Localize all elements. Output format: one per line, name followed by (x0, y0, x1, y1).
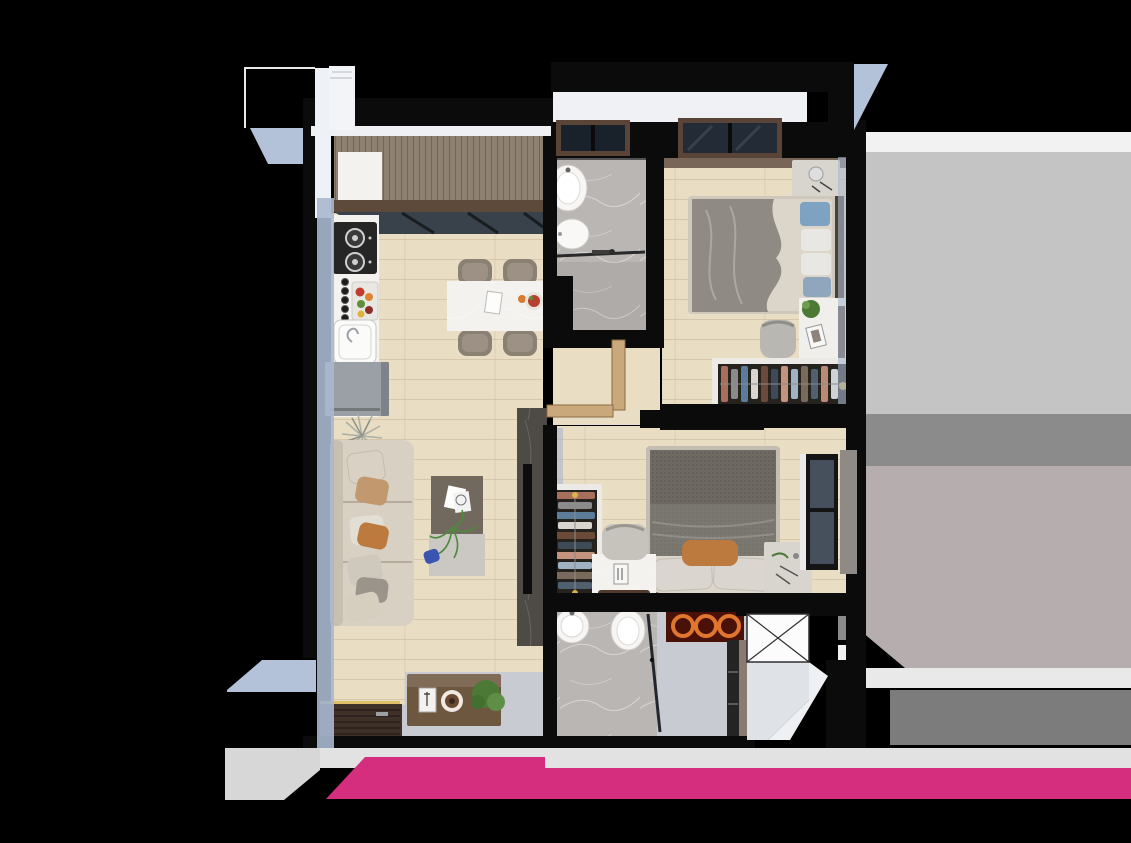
wall-bath1-bottom (543, 330, 664, 348)
wall-bottom-right (826, 660, 866, 752)
fruit-tray (352, 282, 378, 320)
bathroom2-tub (611, 610, 645, 650)
kitchen-sink (334, 320, 376, 364)
wall-niche (543, 276, 573, 334)
shoe-sideboard (407, 674, 505, 726)
bedroom1-window (678, 118, 782, 158)
desk-chair-1 (760, 320, 796, 358)
wardrobe-1 (712, 358, 852, 410)
door-leaf-bedroom2 (547, 405, 613, 417)
tv-wall (517, 408, 547, 646)
refrigerator (325, 362, 389, 416)
bed1-pillows (800, 202, 831, 297)
neighbor-band-white (862, 668, 1131, 688)
balcony-cabinet (338, 152, 382, 202)
neighbor-white-strip (866, 132, 1131, 152)
left-exterior-white (315, 68, 331, 218)
tall-cabinet (727, 640, 747, 736)
service-shaft (747, 614, 809, 662)
neighbor-warm-block (862, 466, 1131, 668)
wardrobe2-light-top (572, 492, 578, 498)
towel-shelf-2 (666, 610, 744, 642)
bed2-accent-pillow (682, 540, 738, 566)
door-leaf-bedroom1 (612, 340, 625, 410)
corner-cap-topleft (329, 66, 355, 130)
sofa (330, 440, 414, 626)
wall-center (543, 425, 557, 758)
neighbor-mid-band (862, 414, 1131, 466)
tv-living (523, 464, 532, 594)
bathroom2-basin (555, 609, 589, 643)
neighbor-dark-band (890, 690, 1131, 745)
bathroom2-door (739, 640, 747, 736)
balcony-beam (331, 200, 543, 212)
wall-top-right-column (828, 62, 854, 124)
bedroom2-window (800, 450, 857, 574)
desk-2 (592, 554, 656, 598)
spice-jars (342, 279, 349, 322)
floor-plan-render (0, 0, 1131, 843)
wall-left (303, 126, 317, 658)
neighbor-light-block (866, 152, 1131, 414)
wall-bath1-bed1 (646, 135, 664, 347)
desk-chair-2 (602, 524, 648, 560)
bed1-blanket (692, 199, 781, 312)
floor-plan-stage (0, 0, 1131, 843)
bathroom1-window (556, 120, 630, 156)
wall-bed2-top (640, 410, 866, 428)
nightstand-1 (792, 160, 840, 200)
bed-1 (688, 196, 844, 314)
curtain (840, 450, 857, 574)
wall-bath1-left (543, 122, 557, 282)
left-wall-inner-face (317, 198, 334, 748)
glass-handle (650, 658, 654, 662)
exterior-white-band (553, 92, 807, 122)
door-handle (376, 712, 388, 716)
coffee-table (422, 476, 485, 576)
bed1-right-wall-face (838, 157, 846, 404)
logo-bar (225, 748, 1131, 800)
wall-top-right (551, 62, 853, 92)
bed-2 (644, 446, 782, 603)
